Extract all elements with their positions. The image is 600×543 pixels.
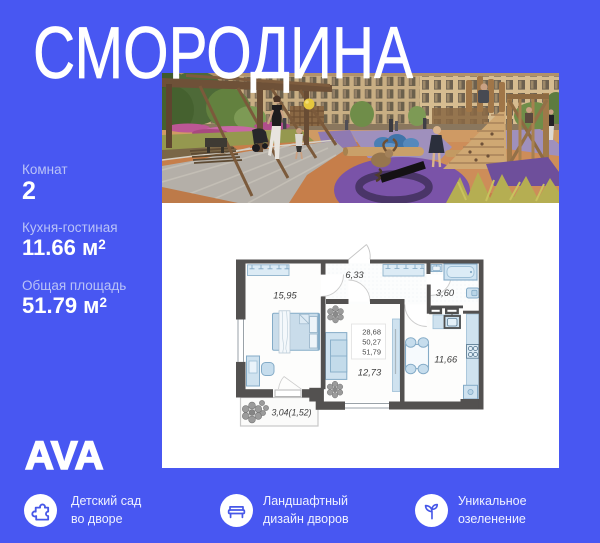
svg-text:51,79: 51,79 bbox=[362, 348, 381, 357]
svg-text:3,60: 3,60 bbox=[436, 287, 455, 298]
svg-text:50,27: 50,27 bbox=[362, 338, 381, 347]
svg-text:11,66: 11,66 bbox=[434, 353, 458, 364]
svg-text:12,73: 12,73 bbox=[358, 367, 382, 378]
svg-text:6,33: 6,33 bbox=[345, 269, 364, 280]
svg-text:28,68: 28,68 bbox=[362, 328, 381, 337]
svg-text:3,04(1,52): 3,04(1,52) bbox=[271, 408, 311, 418]
svg-text:15,95: 15,95 bbox=[273, 289, 297, 300]
